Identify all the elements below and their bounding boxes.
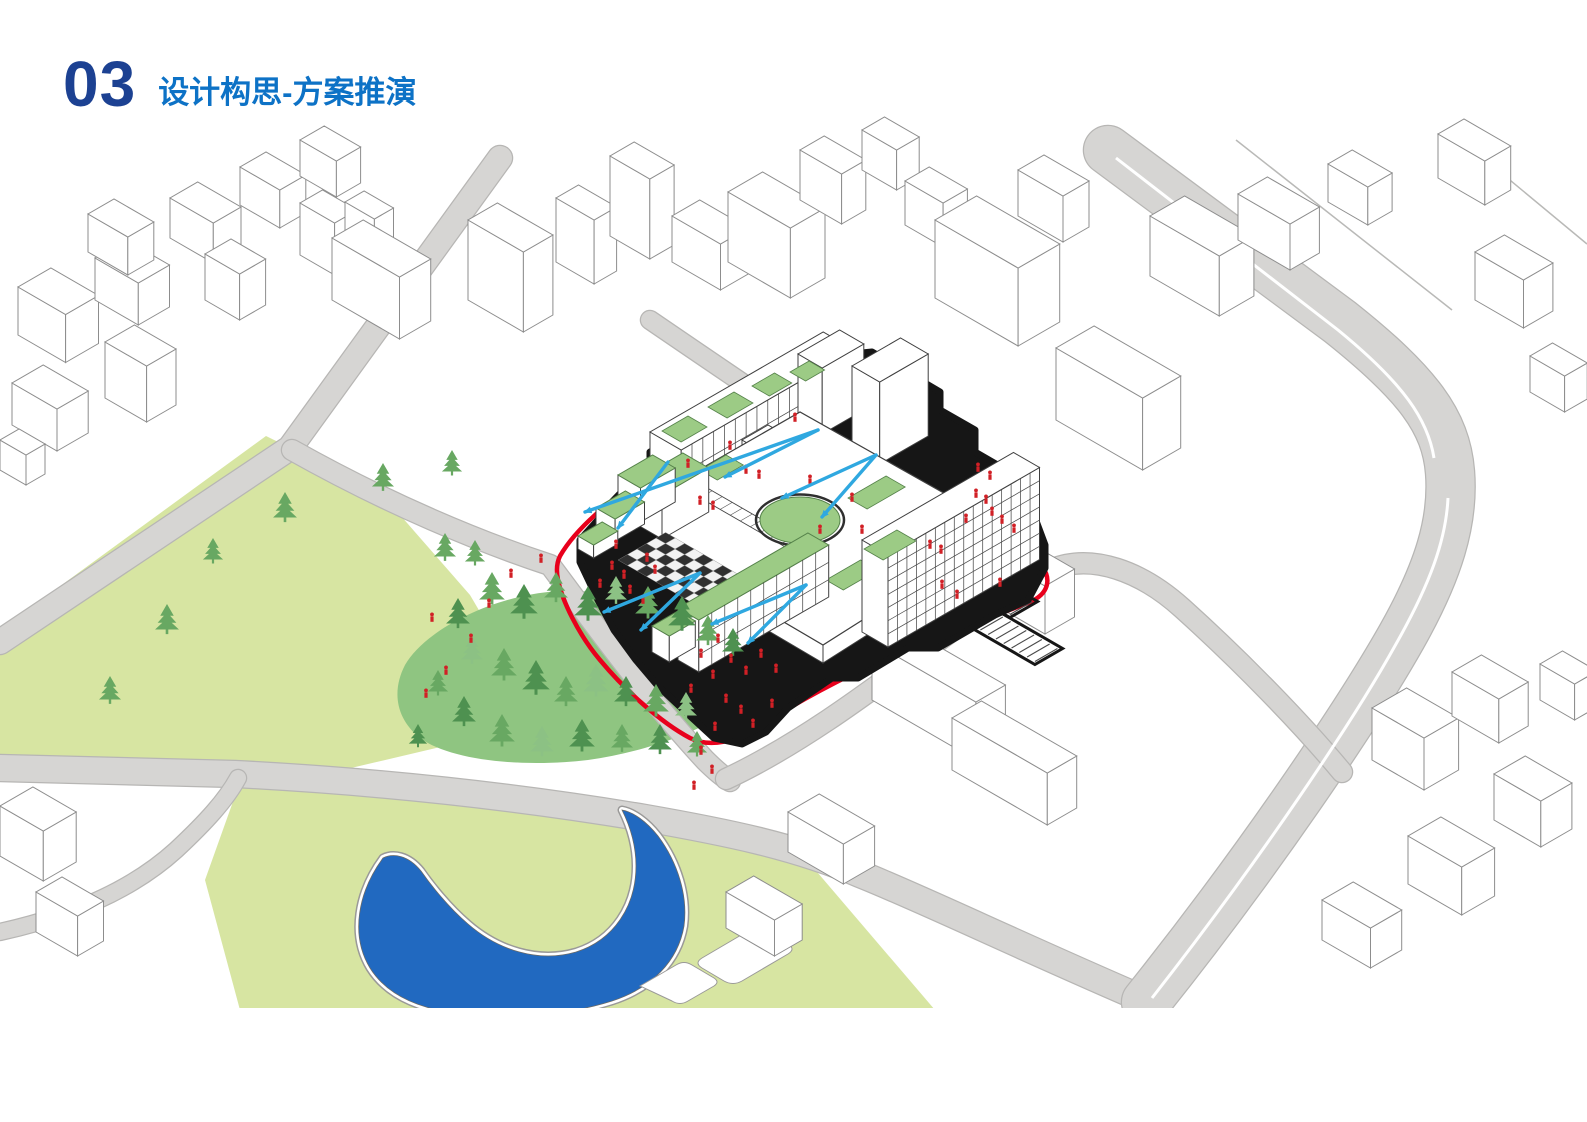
- person-head: [774, 664, 778, 668]
- person-body: [539, 557, 542, 562]
- person-head: [622, 570, 626, 574]
- person-head: [645, 553, 649, 557]
- person-icon: [1000, 515, 1004, 524]
- person-head: [710, 765, 714, 769]
- person-head: [686, 459, 690, 463]
- person-icon: [699, 649, 703, 658]
- person-icon: [808, 475, 812, 484]
- person-icon: [628, 585, 632, 594]
- presentation-slide: 03 设计构思-方案推演: [0, 0, 1587, 1122]
- person-icon: [728, 441, 732, 450]
- person-body: [689, 687, 692, 692]
- person-icon: [988, 471, 992, 480]
- person-icon: [645, 553, 649, 562]
- person-body: [759, 652, 762, 657]
- person-body: [974, 492, 977, 497]
- person-icon: [699, 746, 703, 755]
- person-body: [1012, 527, 1015, 532]
- person-head: [751, 719, 755, 723]
- person-head: [990, 507, 994, 511]
- person-head: [698, 496, 702, 500]
- person-icon: [711, 670, 715, 679]
- person-icon: [610, 561, 614, 570]
- person-body: [955, 593, 958, 598]
- person-body: [770, 702, 773, 707]
- person-icon: [724, 694, 728, 703]
- person-head: [716, 634, 720, 638]
- pine-tree-icon: [442, 450, 462, 476]
- person-body: [641, 598, 644, 603]
- person-body: [686, 462, 689, 467]
- person-body: [711, 504, 714, 509]
- person-body: [988, 474, 991, 479]
- person-head: [940, 580, 944, 584]
- person-head: [759, 649, 763, 653]
- person-head: [770, 699, 774, 703]
- page-bottom-mask: [0, 1008, 1587, 1122]
- person-icon: [793, 413, 797, 422]
- person-head: [430, 613, 434, 617]
- person-body: [628, 588, 631, 593]
- person-body: [645, 556, 648, 561]
- person-body: [939, 548, 942, 553]
- person-head: [744, 666, 748, 670]
- person-body: [928, 543, 931, 548]
- person-icon: [990, 507, 994, 516]
- person-icon: [430, 613, 434, 622]
- person-body: [739, 708, 742, 713]
- person-head: [539, 554, 543, 558]
- person-icon: [770, 699, 774, 708]
- person-head: [444, 666, 448, 670]
- person-icon: [964, 514, 968, 523]
- person-icon: [818, 525, 822, 534]
- person-head: [711, 670, 715, 674]
- person-head: [955, 590, 959, 594]
- person-body: [744, 669, 747, 674]
- person-head: [808, 475, 812, 479]
- person-head: [724, 694, 728, 698]
- person-body: [710, 768, 713, 773]
- person-body: [976, 466, 979, 471]
- person-head: [757, 470, 761, 474]
- person-head: [713, 722, 717, 726]
- person-body: [818, 528, 821, 533]
- person-head: [728, 441, 732, 445]
- person-head: [469, 634, 473, 638]
- person-head: [860, 525, 864, 529]
- person-icon: [686, 459, 690, 468]
- person-body: [622, 573, 625, 578]
- slide-header: 03 设计构思-方案推演: [63, 52, 417, 116]
- person-body: [793, 416, 796, 421]
- person-icon: [653, 565, 657, 574]
- person-icon: [759, 649, 763, 658]
- person-icon: [689, 684, 693, 693]
- person-body: [424, 692, 427, 697]
- person-icon: [614, 540, 618, 549]
- person-head: [699, 649, 703, 653]
- person-icon: [622, 570, 626, 579]
- person-icon: [984, 495, 988, 504]
- person-body: [614, 543, 617, 548]
- person-body: [728, 444, 731, 449]
- person-head: [1000, 515, 1004, 519]
- person-icon: [729, 654, 733, 663]
- person-icon: [940, 580, 944, 589]
- context-building: [650, 165, 674, 259]
- person-head: [653, 565, 657, 569]
- person-body: [860, 528, 863, 533]
- person-icon: [860, 525, 864, 534]
- person-head: [964, 514, 968, 518]
- person-body: [998, 581, 1001, 586]
- person-head: [793, 413, 797, 417]
- person-icon: [487, 599, 491, 608]
- person-icon: [711, 501, 715, 510]
- person-icon: [939, 545, 943, 554]
- person-body: [984, 498, 987, 503]
- person-head: [939, 545, 943, 549]
- person-body: [729, 657, 732, 662]
- page-title: 设计构思-方案推演: [158, 77, 416, 116]
- person-body: [598, 582, 601, 587]
- person-body: [751, 722, 754, 727]
- person-body: [850, 496, 853, 501]
- person-body: [940, 583, 943, 588]
- person-icon: [692, 781, 696, 790]
- person-head: [1012, 524, 1016, 528]
- person-body: [757, 473, 760, 478]
- person-body: [692, 784, 695, 789]
- person-body: [1000, 518, 1003, 523]
- person-icon: [928, 540, 932, 549]
- person-icon: [509, 569, 513, 578]
- pine-tree-icon: [479, 572, 505, 604]
- person-head: [974, 489, 978, 493]
- person-body: [610, 564, 613, 569]
- person-head: [509, 569, 513, 573]
- person-icon: [713, 722, 717, 731]
- person-head: [699, 746, 703, 750]
- person-head: [614, 540, 618, 544]
- person-head: [711, 501, 715, 505]
- person-body: [487, 602, 490, 607]
- person-icon: [955, 590, 959, 599]
- person-icon: [710, 765, 714, 774]
- person-body: [653, 568, 656, 573]
- person-body: [699, 749, 702, 754]
- person-body: [990, 510, 993, 515]
- person-icon: [539, 554, 543, 563]
- circular-lawn: [760, 497, 840, 543]
- person-head: [692, 781, 696, 785]
- person-icon: [1012, 524, 1016, 533]
- person-icon: [751, 719, 755, 728]
- person-body: [713, 725, 716, 730]
- person-body: [469, 637, 472, 642]
- section-number: 03: [63, 52, 136, 116]
- person-icon: [469, 634, 473, 643]
- person-head: [928, 540, 932, 544]
- person-body: [430, 616, 433, 621]
- person-head: [628, 585, 632, 589]
- person-head: [689, 684, 693, 688]
- person-body: [699, 652, 702, 657]
- person-head: [424, 689, 428, 693]
- person-icon: [424, 689, 428, 698]
- person-body: [698, 499, 701, 504]
- person-head: [998, 578, 1002, 582]
- person-icon: [444, 666, 448, 675]
- person-body: [716, 637, 719, 642]
- person-icon: [744, 666, 748, 675]
- person-head: [729, 654, 733, 658]
- person-body: [744, 468, 747, 473]
- person-body: [444, 669, 447, 674]
- person-head: [739, 705, 743, 709]
- person-head: [610, 561, 614, 565]
- person-icon: [698, 496, 702, 505]
- person-icon: [998, 578, 1002, 587]
- person-body: [724, 697, 727, 702]
- person-body: [711, 673, 714, 678]
- person-head: [598, 579, 602, 583]
- person-icon: [974, 489, 978, 498]
- person-body: [964, 517, 967, 522]
- person-icon: [757, 470, 761, 479]
- person-body: [509, 572, 512, 577]
- person-head: [988, 471, 992, 475]
- person-head: [818, 525, 822, 529]
- person-icon: [716, 634, 720, 643]
- person-body: [774, 667, 777, 672]
- person-icon: [850, 493, 854, 502]
- person-head: [984, 495, 988, 499]
- person-icon: [774, 664, 778, 673]
- person-head: [487, 599, 491, 603]
- site-plan-illustration: [0, 0, 1587, 1122]
- person-icon: [739, 705, 743, 714]
- person-icon: [598, 579, 602, 588]
- person-head: [976, 463, 980, 467]
- person-head: [850, 493, 854, 497]
- person-icon: [976, 463, 980, 472]
